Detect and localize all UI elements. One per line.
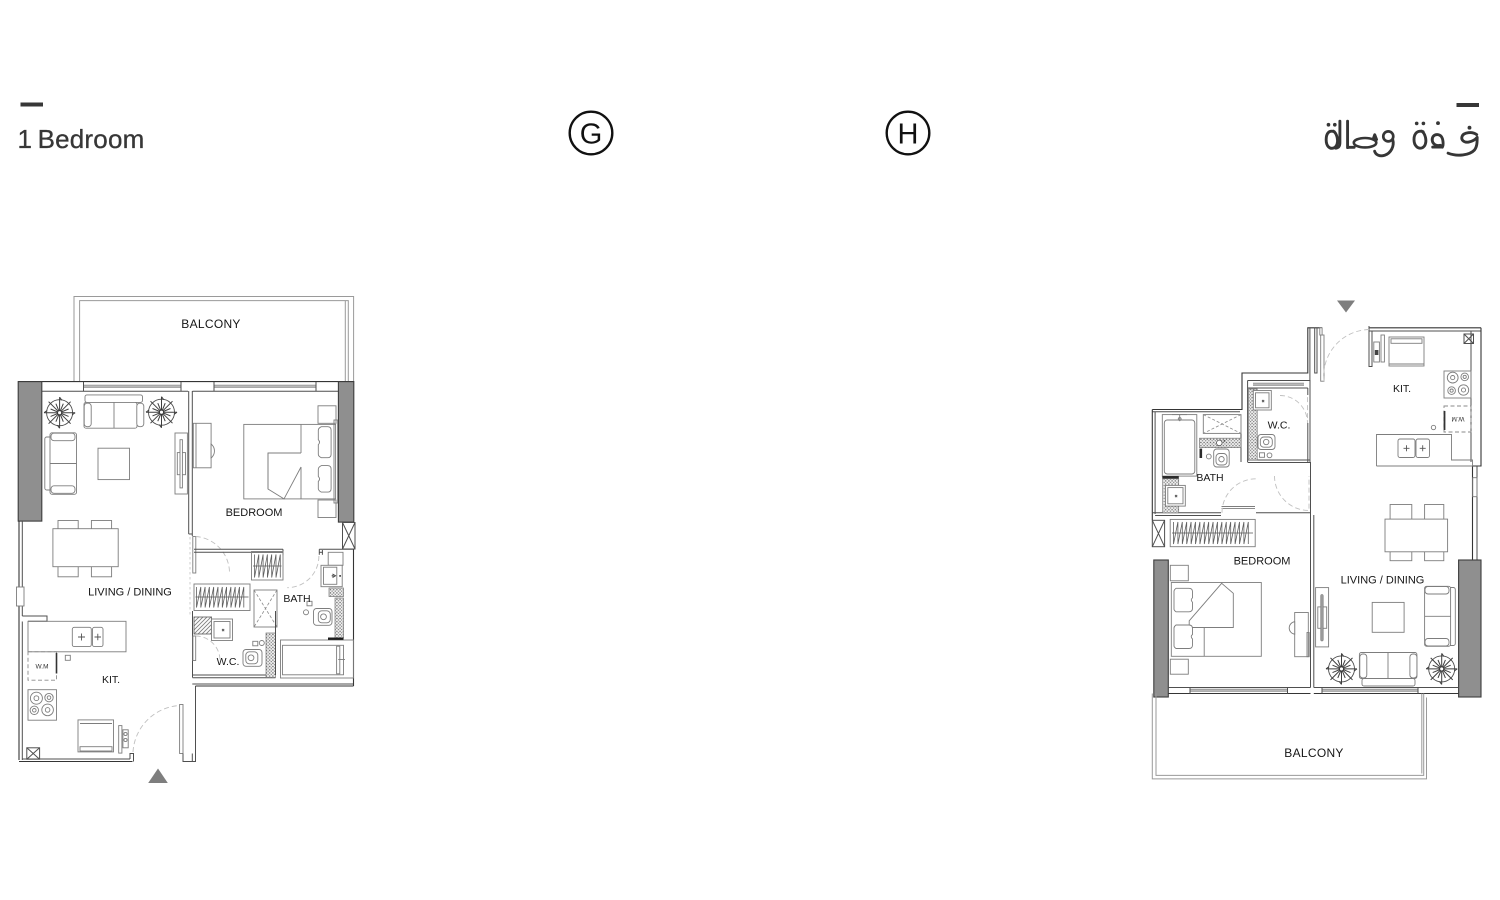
svg-text:BATH: BATH [1196,472,1223,484]
svg-text:BEDROOM: BEDROOM [1234,556,1291,568]
svg-text:BEDROOM: BEDROOM [226,507,283,519]
svg-text:H: H [898,119,919,151]
svg-text:W.M: W.M [36,664,49,671]
svg-text:1 Bedroom: 1 Bedroom [18,124,145,154]
svg-text:LIVING / DINING: LIVING / DINING [88,587,172,599]
svg-text:BATH: BATH [283,593,310,605]
svg-text:KIT.: KIT. [102,674,120,686]
svg-text:W.C.: W.C. [217,656,240,668]
svg-text:KIT.: KIT. [1393,383,1411,395]
svg-text:BALCONY: BALCONY [1284,746,1343,760]
svg-text:BALCONY: BALCONY [181,317,240,331]
svg-text:W.M: W.M [1452,415,1465,422]
svg-text:G: G [580,119,603,151]
svg-text:LIVING / DINING: LIVING / DINING [1341,575,1425,587]
svg-text:W.C.: W.C. [1268,420,1291,432]
